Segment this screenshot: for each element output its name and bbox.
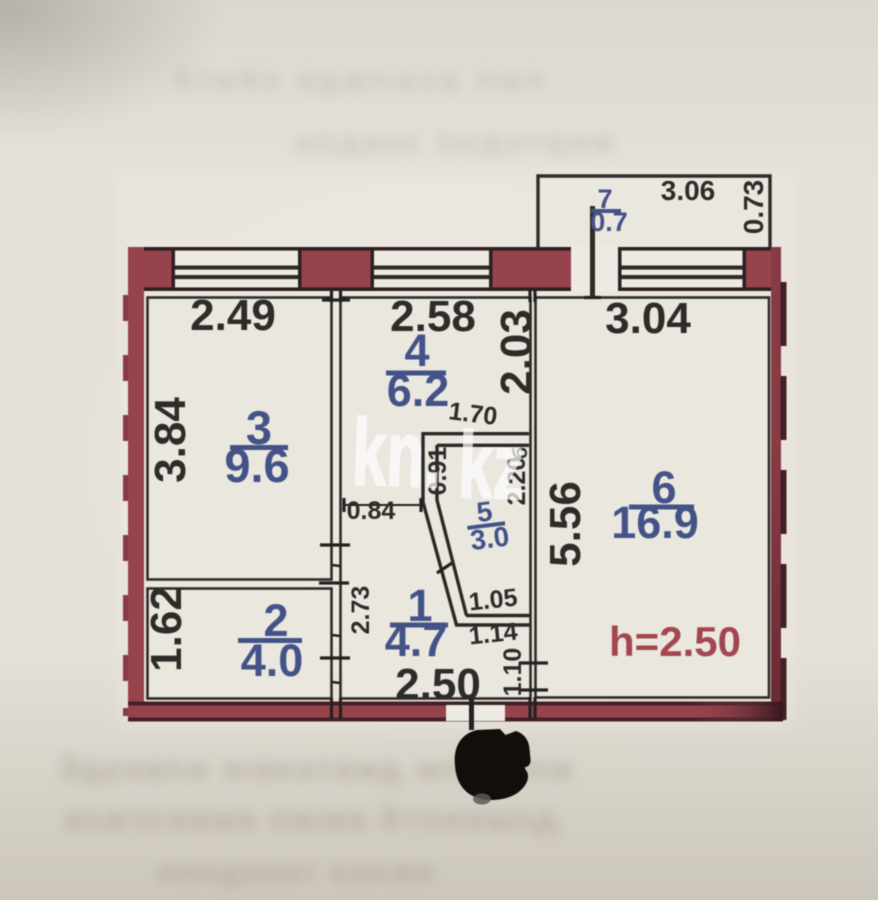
svg-text:9.6: 9.6 bbox=[224, 439, 289, 492]
svg-text:2.03: 2.03 bbox=[492, 309, 541, 395]
svg-text:0.73: 0.73 bbox=[738, 180, 769, 235]
svg-text:kn. kz: kn. kz bbox=[350, 399, 526, 519]
svg-text:4.7: 4.7 bbox=[385, 615, 448, 666]
svg-text:3.84: 3.84 bbox=[146, 397, 195, 483]
svg-text:h=2.50: h=2.50 bbox=[609, 618, 741, 665]
svg-text:2.73: 2.73 bbox=[347, 586, 375, 635]
svg-text:1.62: 1.62 bbox=[142, 586, 191, 672]
svg-text:4.0: 4.0 bbox=[241, 635, 304, 686]
svg-text:16.9: 16.9 bbox=[611, 497, 699, 548]
svg-text:1.14: 1.14 bbox=[467, 618, 518, 651]
svg-text:1.10: 1.10 bbox=[499, 648, 527, 697]
svg-text:0.7: 0.7 bbox=[590, 207, 628, 237]
svg-text:1.05: 1.05 bbox=[467, 584, 518, 617]
svg-text:2.49: 2.49 bbox=[190, 291, 276, 340]
svg-text:2.58: 2.58 bbox=[390, 292, 476, 341]
svg-text:3.04: 3.04 bbox=[605, 294, 691, 343]
svg-text:5.56: 5.56 bbox=[541, 481, 590, 567]
svg-text:3.0: 3.0 bbox=[469, 521, 511, 557]
svg-text:3.06: 3.06 bbox=[661, 175, 716, 206]
svg-text:2.50: 2.50 bbox=[395, 660, 481, 709]
